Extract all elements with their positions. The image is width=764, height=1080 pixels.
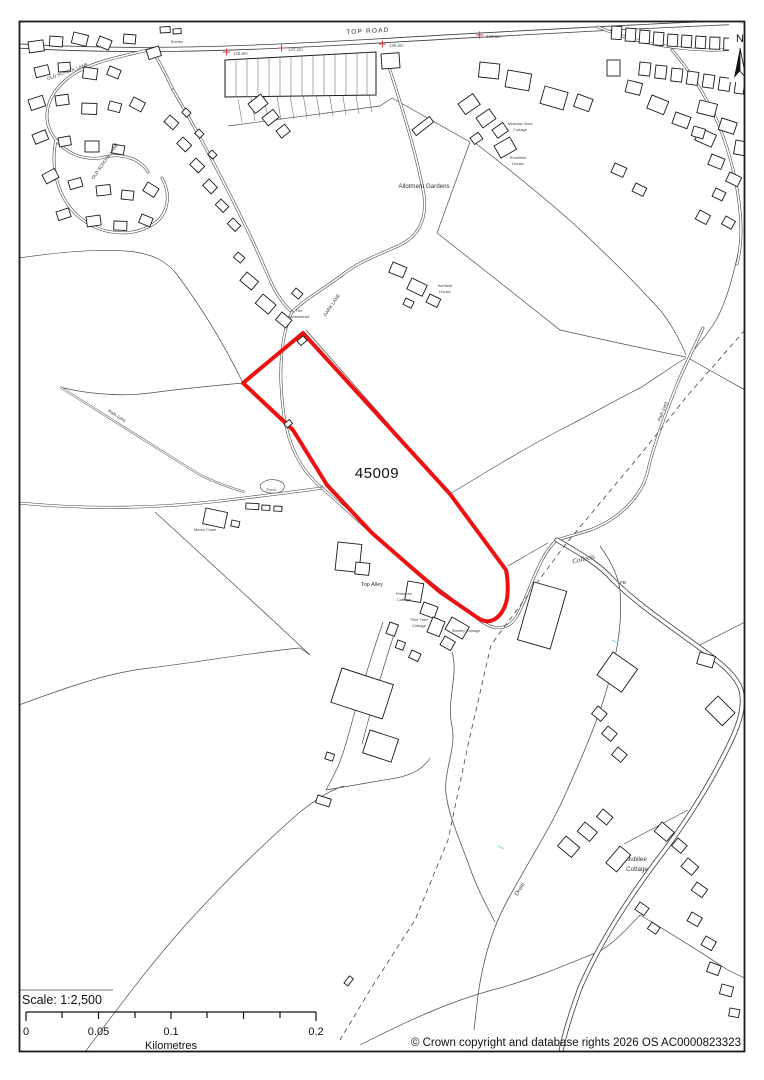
scale-tick-005: 0.05 bbox=[88, 1026, 109, 1038]
parcel-id-label: 45009 bbox=[355, 465, 399, 482]
rosefield-label-1: Rosefield bbox=[510, 155, 527, 160]
primrose-label-2: Cottage bbox=[397, 597, 412, 602]
stanley-cottage-label: Stanley Cottage bbox=[452, 628, 481, 633]
primrose-label-1: Primrose bbox=[396, 591, 413, 596]
terrace-row bbox=[225, 52, 376, 97]
meadow-view-label-1: Meadow View bbox=[508, 121, 533, 126]
os-map-canvas: TOP ROAD OLD SCHOOL LANE OLD SCHOOL LANE… bbox=[0, 0, 764, 1080]
rosefield-label-2: House bbox=[512, 161, 524, 166]
scale-tick-0: 0 bbox=[23, 1026, 29, 1038]
scale-text: Scale: 1:2,500 bbox=[22, 993, 102, 1007]
pine-tree-label-1: Pine Tree bbox=[410, 617, 428, 622]
benchmark-label-1: 126.8m bbox=[233, 51, 248, 56]
jubilee-label-1: Jubilee bbox=[627, 856, 647, 863]
pond-label: Pond bbox=[266, 487, 275, 492]
benchmark-label-2: 127.2m bbox=[288, 47, 303, 52]
homestead-label-2: Homestead bbox=[289, 314, 309, 319]
scale-unit-label: Kilometres bbox=[145, 1040, 197, 1052]
ashfield-label-1: Ashfield bbox=[438, 283, 452, 288]
benchmark-label-3: 135.6m bbox=[389, 43, 404, 48]
jubilee-label-2: Cottage bbox=[626, 866, 648, 873]
benchmark-label-4: 138.8m bbox=[486, 34, 501, 39]
fb-label: FB bbox=[620, 580, 626, 585]
ashfield-label-2: House bbox=[439, 289, 451, 294]
meadow-view-label-2: Cottage bbox=[513, 127, 528, 132]
copyright-text: © Crown copyright and database rights 20… bbox=[411, 1037, 741, 1049]
moors-close-label: Moors Close bbox=[194, 527, 217, 532]
allotment-gardens-label: Allotment Gardens bbox=[398, 183, 449, 190]
pine-tree-label-2: Cottage bbox=[412, 623, 427, 628]
scale-tick-01: 0.1 bbox=[163, 1026, 178, 1038]
homestead-label-1: The bbox=[296, 308, 304, 313]
top-alley-label: Top Alley bbox=[361, 582, 383, 588]
scale-tick-02: 0.2 bbox=[308, 1026, 323, 1038]
shelter-label: Shelter bbox=[171, 39, 184, 44]
north-label: N bbox=[736, 33, 744, 45]
